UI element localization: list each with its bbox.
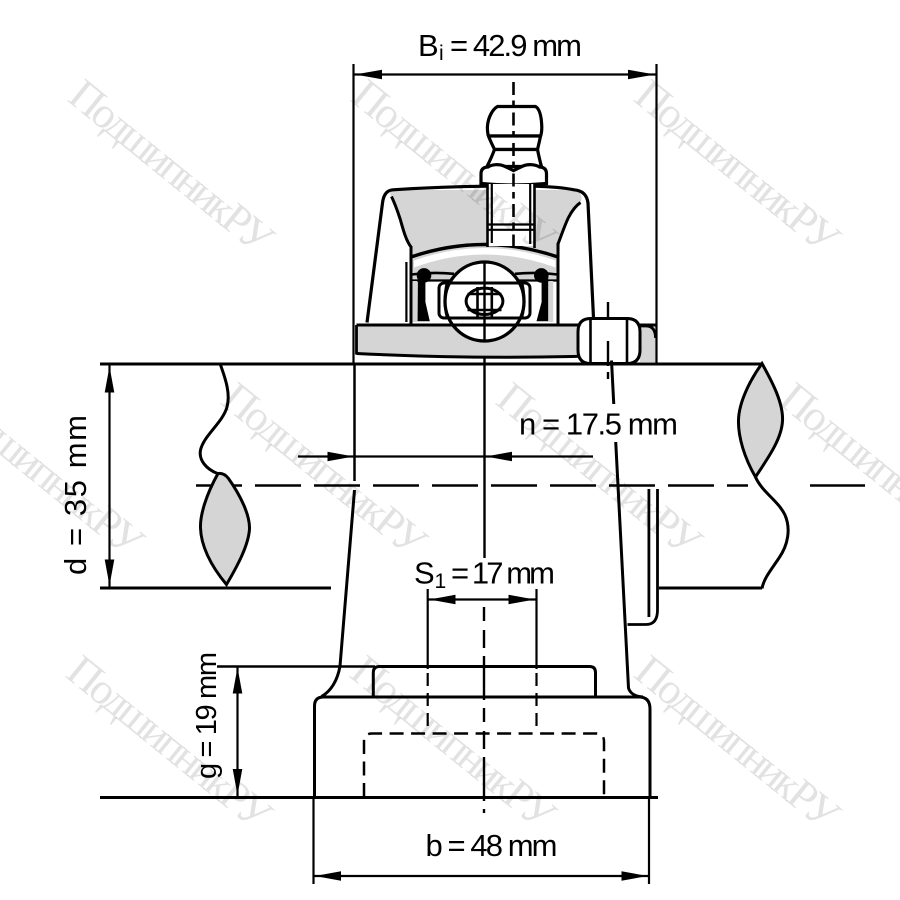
svg-text:= 17 mm: = 17 mm [451, 556, 555, 591]
svg-text:= 42.9 mm: = 42.9 mm [450, 28, 582, 63]
svg-text:i: i [439, 42, 444, 65]
svg-text:S: S [414, 556, 435, 591]
svg-text:B: B [418, 28, 439, 63]
svg-text:1: 1 [435, 570, 447, 593]
